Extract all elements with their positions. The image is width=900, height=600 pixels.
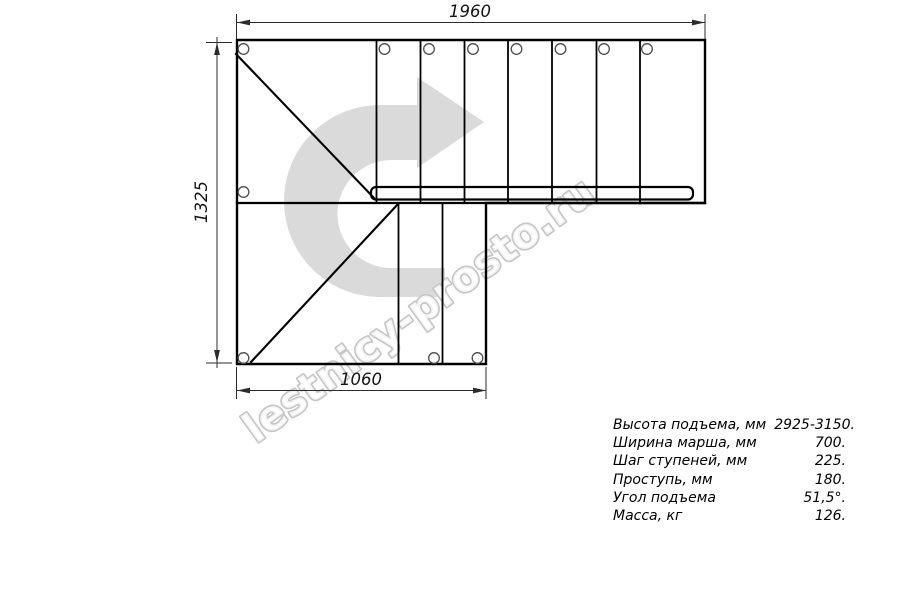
dim-left-label: 1325 xyxy=(192,181,211,223)
mount-hole xyxy=(555,44,566,55)
mount-hole xyxy=(511,44,522,55)
spec-value: 51,5°. xyxy=(803,489,846,507)
mount-hole xyxy=(472,353,483,364)
dim-arrow-left xyxy=(237,20,250,26)
stair-structure xyxy=(236,40,705,364)
spec-value: 180. xyxy=(815,471,846,489)
spec-label: Угол подъема xyxy=(613,489,716,507)
spec-value: 700. xyxy=(815,434,846,452)
dim-bottom-label: 1060 xyxy=(340,370,382,389)
dim-arrow-left xyxy=(237,388,250,394)
mount-hole xyxy=(468,44,479,55)
spec-row-angle: Угол подъема 51,5°. xyxy=(613,489,846,507)
dim-top-label: 1960 xyxy=(449,2,491,21)
spec-label: Масса, кг xyxy=(613,507,682,525)
spec-row-height: Высота подъема, мм 2925-3150. xyxy=(613,416,846,434)
dimension-left: 1325 xyxy=(192,37,232,368)
dimension-top: 1960 xyxy=(237,2,706,39)
dim-arrow-up xyxy=(214,43,220,56)
tread-strip xyxy=(371,187,693,200)
mount-hole xyxy=(424,44,435,55)
dim-arrow-right xyxy=(473,388,486,394)
dim-arrow-right xyxy=(692,20,705,26)
stair-drawing-page: lestnicy-prosto.ru xyxy=(0,0,900,600)
spec-value: 225. xyxy=(815,452,846,470)
spec-row-march-width: Ширина марша, мм 700. xyxy=(613,434,846,452)
spec-value: 126. xyxy=(815,507,846,525)
mount-hole xyxy=(238,187,249,198)
spec-row-tread: Проступь, мм 180. xyxy=(613,471,846,489)
mount-hole xyxy=(429,353,440,364)
spec-row-mass: Масса, кг 126. xyxy=(613,507,846,525)
spec-label: Высота подъема, мм xyxy=(613,416,766,434)
mount-hole xyxy=(238,44,249,55)
mount-hole xyxy=(379,44,390,55)
mount-hole xyxy=(599,44,610,55)
spec-table: Высота подъема, мм 2925-3150. Ширина мар… xyxy=(613,416,846,525)
spec-row-step-pitch: Шаг ступеней, мм 225. xyxy=(613,452,846,470)
spec-value: 2925-3150. xyxy=(774,416,855,434)
mount-hole xyxy=(642,44,653,55)
spec-label: Проступь, мм xyxy=(613,471,713,489)
dim-arrow-down xyxy=(214,350,220,363)
mount-hole xyxy=(238,353,249,364)
spec-label: Ширина марша, мм xyxy=(613,434,757,452)
spec-label: Шаг ступеней, мм xyxy=(613,452,747,470)
